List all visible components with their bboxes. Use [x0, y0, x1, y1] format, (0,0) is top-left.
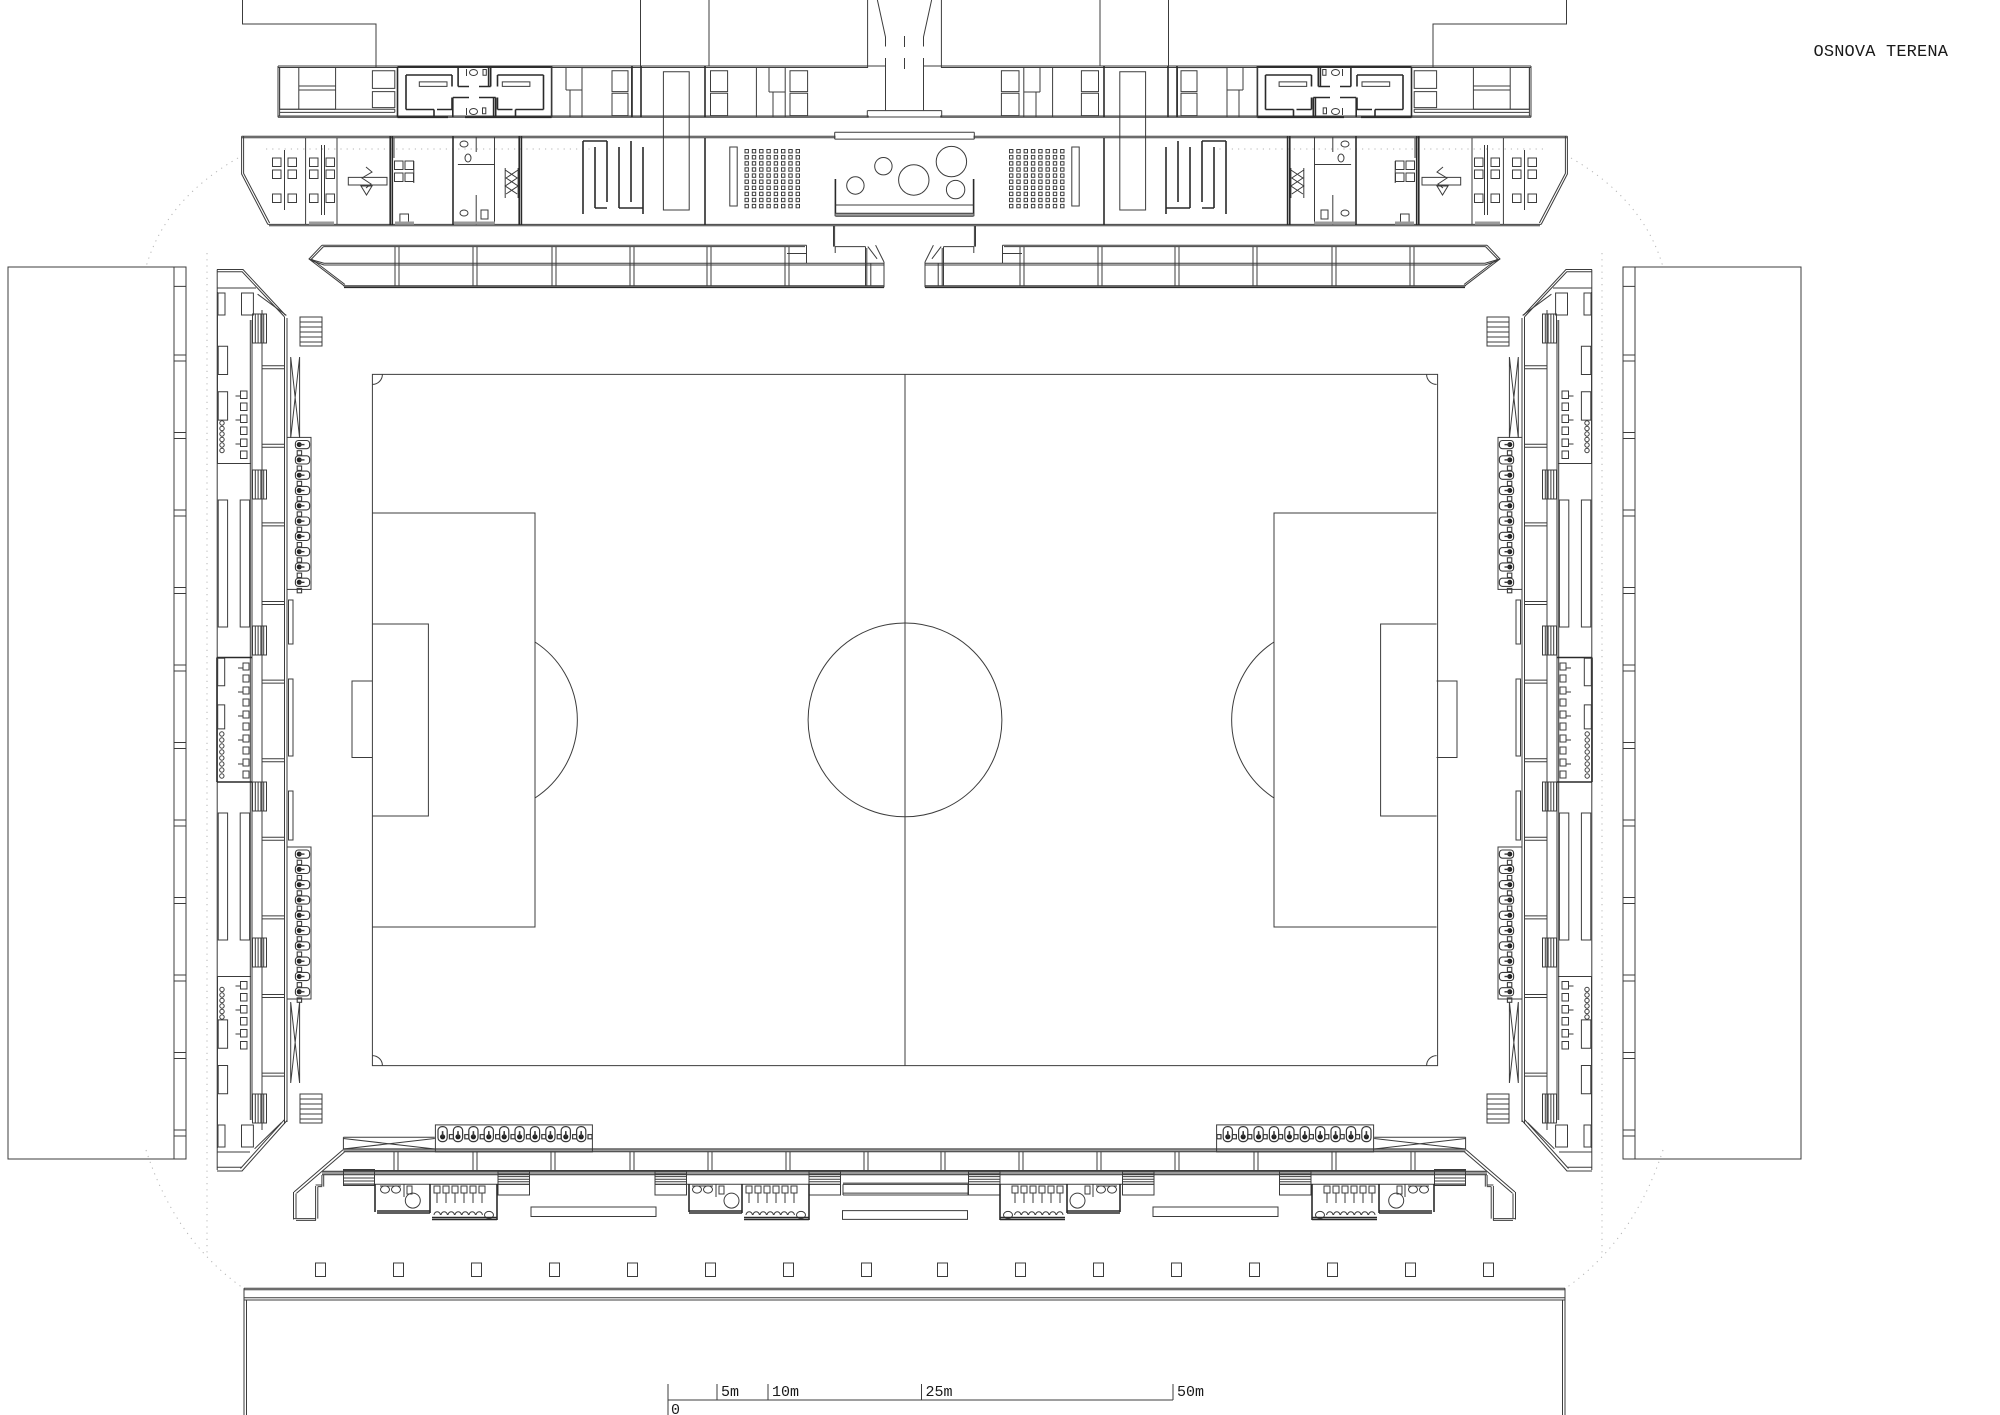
svg-text:OSNOVA TERENA: OSNOVA TERENA: [1814, 43, 1949, 62]
svg-text:5m: 5m: [721, 1384, 739, 1401]
svg-text:25m: 25m: [926, 1384, 953, 1401]
svg-text:10m: 10m: [772, 1384, 799, 1401]
svg-text:50m: 50m: [1177, 1384, 1204, 1401]
svg-text:0: 0: [671, 1402, 680, 1415]
